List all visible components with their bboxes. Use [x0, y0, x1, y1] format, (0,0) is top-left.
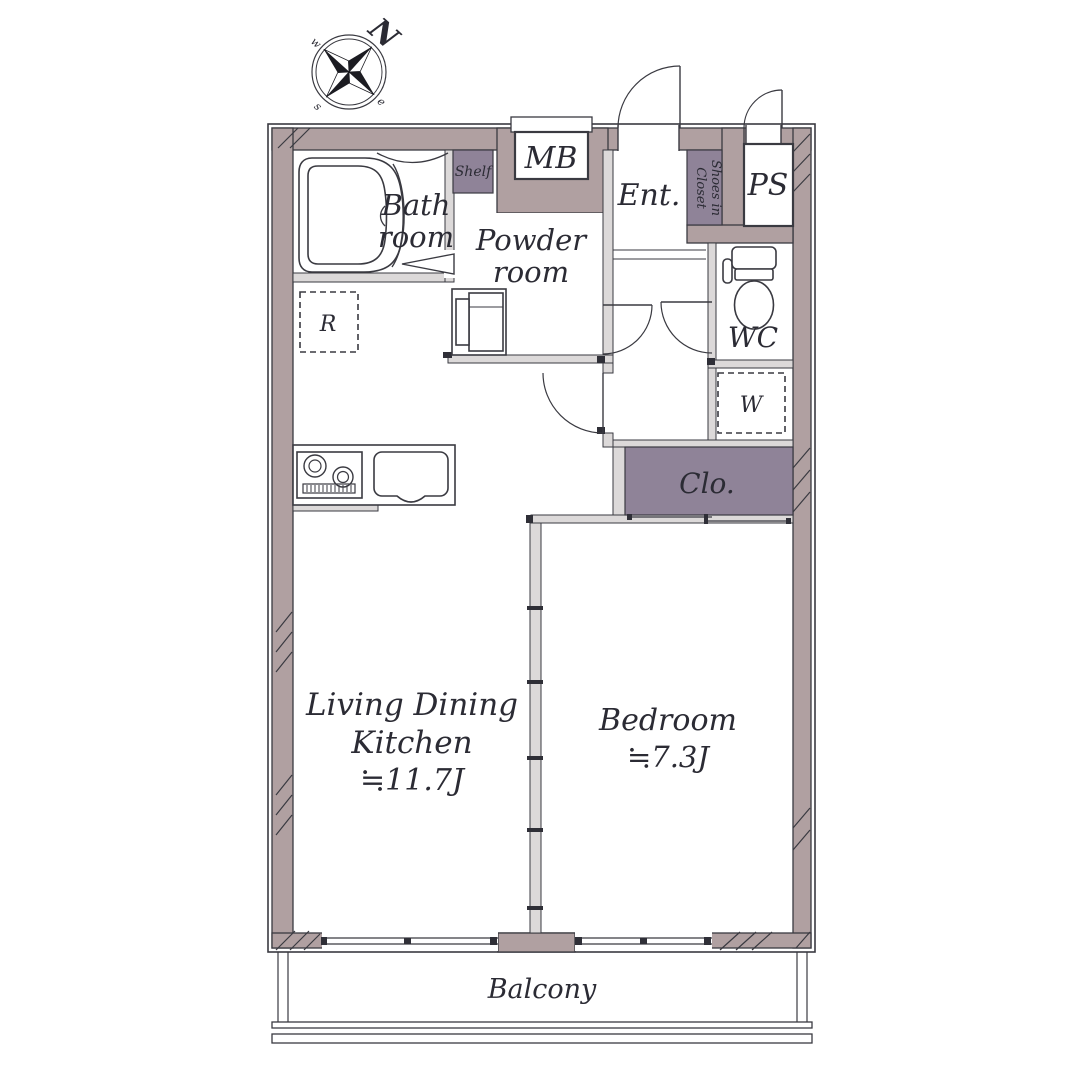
entrance-door: [618, 66, 680, 128]
ldk-label-1: Living Dining: [305, 687, 518, 723]
ps-label: PS: [747, 168, 789, 203]
bedroom-size-label: ≒7.3J: [627, 740, 710, 774]
bedroom-label: Bedroom: [598, 703, 737, 738]
floor-plan-page: N w s e: [0, 0, 1080, 1080]
wc-label: WC: [728, 321, 778, 354]
washer-label: W: [740, 393, 765, 418]
entrance-label: Ent.: [617, 178, 681, 213]
washbasin: [452, 289, 506, 355]
ldk-size-label: ≒11.7J: [360, 763, 466, 798]
bath-label-1: Bath: [381, 188, 451, 222]
compass-w-label: w: [308, 35, 324, 51]
ldk-label-2: Kitchen: [350, 725, 472, 761]
kitchen-counter: [293, 445, 455, 505]
bath-label-2: room: [378, 220, 454, 254]
shelf-label: Shelf: [455, 164, 494, 180]
mb-label: MB: [524, 141, 578, 176]
stove: [297, 452, 362, 498]
kitchen-sink: [374, 452, 448, 502]
floor-plan: N w s e: [0, 0, 1080, 1080]
compass-s-label: s: [311, 100, 324, 114]
powder-label-2: room: [493, 255, 569, 289]
fridge-label: R: [319, 312, 337, 337]
compass-star: N w s e: [277, 0, 430, 143]
closet-label: Clo.: [679, 467, 735, 500]
shoes-closet-label-2: Closet: [693, 167, 708, 209]
compass-rose: N w s e: [277, 0, 430, 143]
balcony-label: Balcony: [487, 974, 597, 1005]
shoes-closet-label-1: Shoes in: [708, 160, 723, 216]
powder-label-1: Powder: [475, 223, 588, 257]
ps-door: [744, 90, 782, 128]
balcony-rail: [272, 1022, 812, 1028]
